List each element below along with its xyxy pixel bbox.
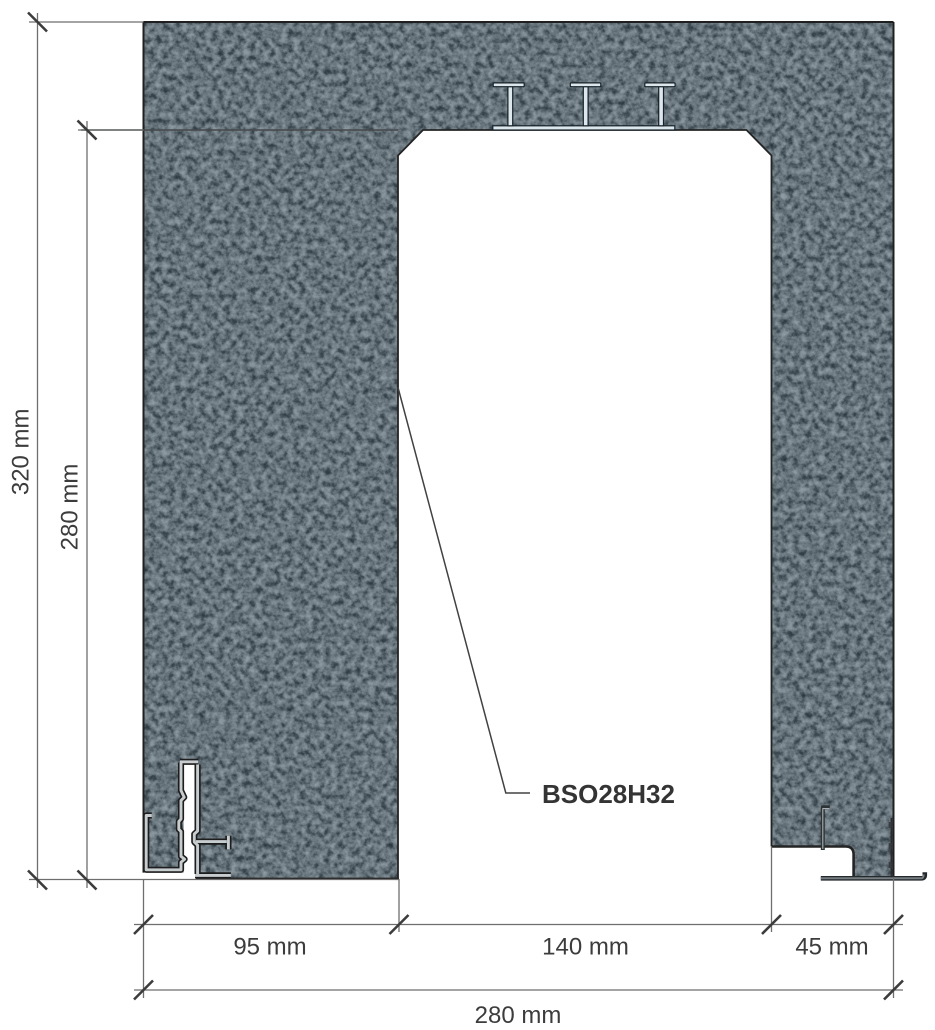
svg-text:140 mm: 140 mm [542, 934, 629, 961]
svg-text:320 mm: 320 mm [8, 408, 35, 495]
svg-text:BSO28H32: BSO28H32 [542, 779, 675, 809]
svg-text:280 mm: 280 mm [57, 464, 84, 551]
svg-text:280 mm: 280 mm [475, 1002, 562, 1029]
svg-text:45 mm: 45 mm [795, 934, 868, 961]
svg-text:95 mm: 95 mm [233, 934, 306, 961]
